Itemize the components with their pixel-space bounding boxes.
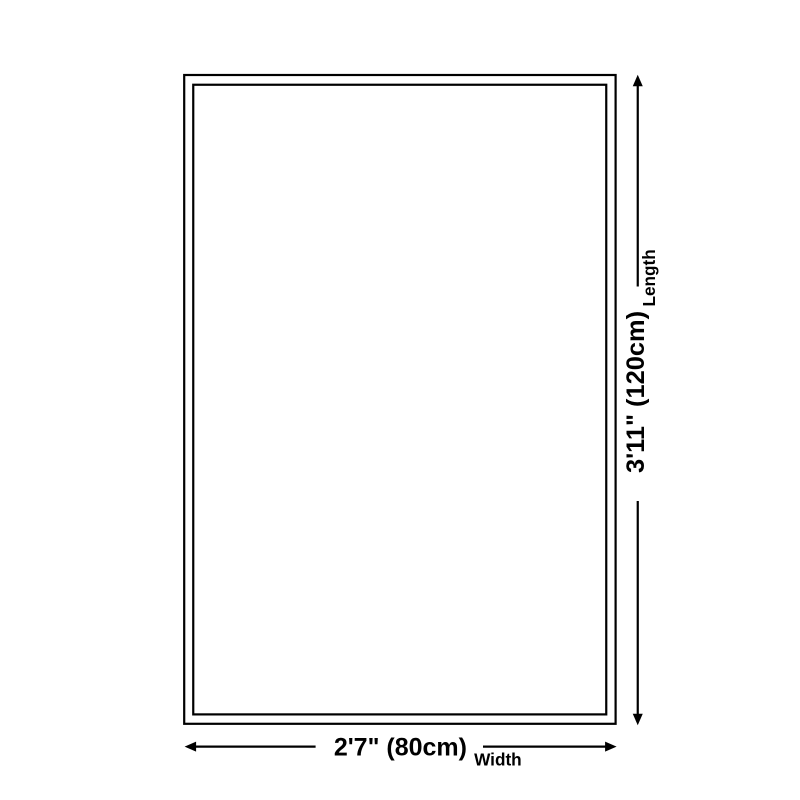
svg-text:2'7" (80cm): 2'7" (80cm) [334, 733, 467, 761]
svg-text:Length: Length [639, 249, 659, 306]
svg-text:Width: Width [474, 750, 522, 770]
svg-text:3'11" (120cm): 3'11" (120cm) [622, 311, 650, 473]
